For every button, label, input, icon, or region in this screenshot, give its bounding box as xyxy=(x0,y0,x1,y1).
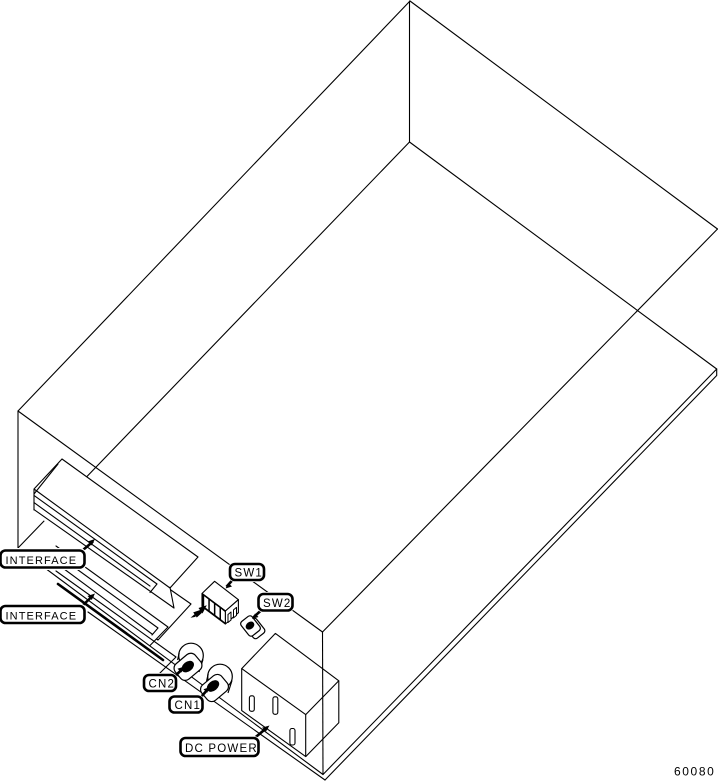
svg-text:INTERFACE: INTERFACE xyxy=(6,555,78,567)
svg-text:DC POWER: DC POWER xyxy=(185,743,258,755)
svg-text:CN2: CN2 xyxy=(149,679,176,691)
svg-text:60080: 60080 xyxy=(674,765,715,779)
svg-text:SW1: SW1 xyxy=(235,568,264,580)
svg-text:SW2: SW2 xyxy=(263,598,292,610)
svg-text:INTERFACE: INTERFACE xyxy=(6,610,78,622)
svg-text:CN1: CN1 xyxy=(175,700,202,712)
